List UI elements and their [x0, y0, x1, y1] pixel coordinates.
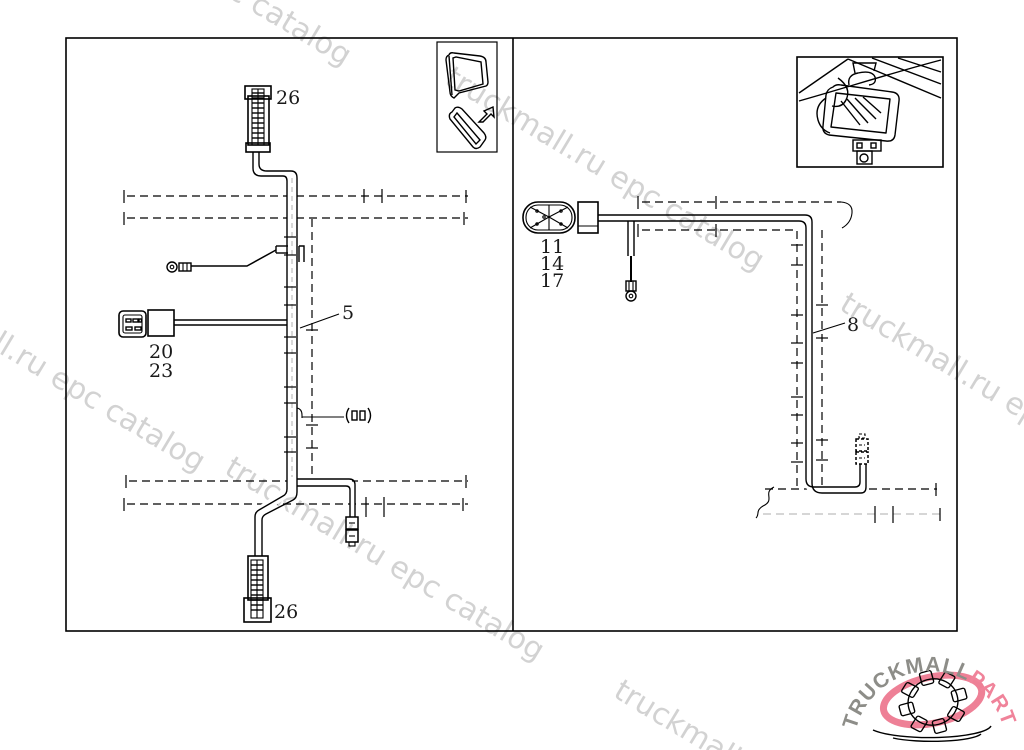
door-mirror-inset: [797, 57, 943, 167]
multi-pin-connector-top: [245, 86, 271, 152]
break-squiggle: [756, 487, 774, 518]
ring-terminal-icon: [167, 262, 177, 272]
catalog-diagram: truckmall.ru epc catalog truckmall.ru ep…: [0, 0, 1024, 750]
connector-housing: [578, 202, 598, 233]
right-panel-drawing: 11 14 17 8: [523, 57, 943, 523]
callout-leader: [300, 314, 339, 328]
logo-swoosh-shadow: [873, 726, 991, 741]
part-number-label: 26: [274, 601, 298, 623]
part-number-label: 26: [276, 87, 300, 109]
part-number-label: 23: [149, 360, 173, 382]
part-number-label: 17: [540, 270, 564, 292]
inline-connector-branch: [297, 408, 371, 423]
mirror-connector: [523, 202, 575, 233]
ring-terminal-icon: [626, 291, 636, 301]
ground-wire-branch: [626, 221, 636, 301]
left-panel-drawing: 26 26: [119, 42, 497, 623]
callout-leader: [813, 323, 845, 333]
ring-terminal-branch: [167, 246, 304, 272]
part-number-label: 5: [342, 302, 354, 324]
door-mirror-icon: [823, 63, 899, 164]
watermark-text: truckmall.ru epc catalog: [0, 261, 212, 479]
multi-pin-connector-bottom: [244, 556, 271, 622]
ghost-connector-icon: [347, 408, 371, 423]
cab-sketch: [799, 58, 941, 133]
two-pin-connector: [856, 434, 868, 464]
watermark-text: truckmall.ru epc catalog: [439, 60, 771, 278]
part-number-label: 8: [847, 314, 859, 336]
connector-20-23: [119, 310, 287, 337]
watermark-text: truckmall.ru epc catalog: [26, 0, 358, 73]
